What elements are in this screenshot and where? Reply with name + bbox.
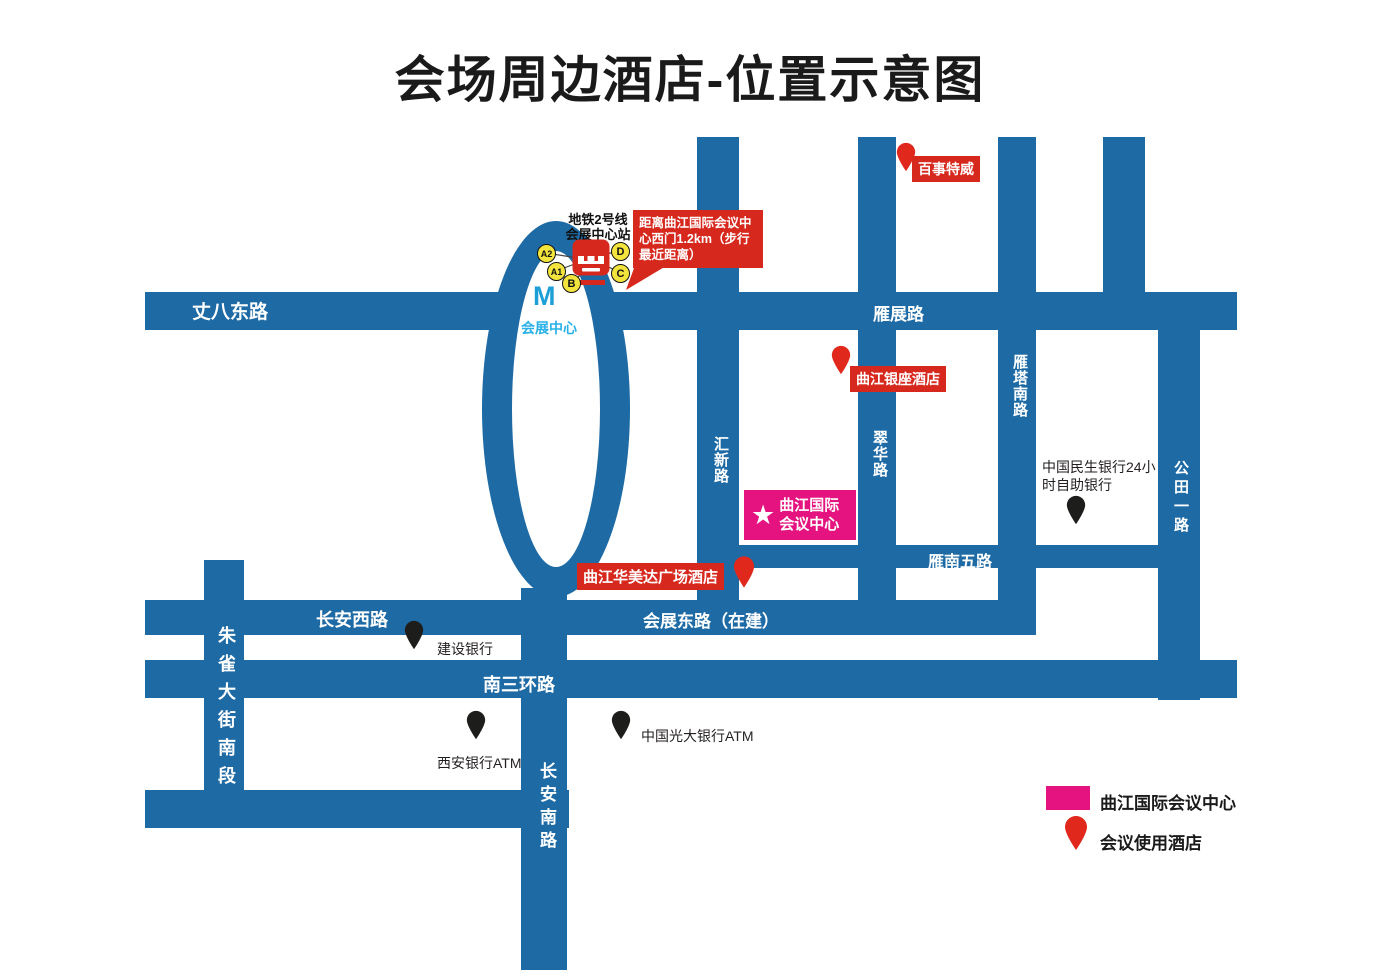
- exit-b-label: B: [568, 278, 576, 290]
- bank-label-xian-atm: 西安银行ATM: [437, 753, 522, 773]
- road-label-yanta-south: 雁塔南路: [1009, 354, 1030, 418]
- distance-callout: 距离曲江国际会议中心西门1.2km（步行最近距离）: [633, 210, 763, 268]
- hotel-location-map: 会场周边酒店-位置示意图 丈八东路 雁展路 长安西路 会展东路（在建） 南三环路…: [0, 0, 1380, 976]
- road-label-south-3rd-ring: 南三环路: [483, 671, 555, 697]
- bank-pin-minsheng: [1066, 495, 1086, 525]
- metro-exit-a2: A2: [537, 244, 556, 263]
- expo-center-label: 会展中心: [521, 318, 577, 338]
- legend-venue-swatch: [1046, 786, 1090, 810]
- hotel-label-best-west: 百事特威: [912, 156, 980, 182]
- page-title: 会场周边酒店-位置示意图: [0, 40, 1380, 112]
- hotel-pin-ramada: [733, 556, 755, 588]
- venue-name-line1: 曲江国际: [779, 496, 839, 515]
- metro-station-name: 地铁2号线 会展中心站: [550, 212, 646, 242]
- venue-box: ★ 曲江国际 会议中心: [744, 490, 856, 540]
- road-south-3rd-ring: [145, 660, 1237, 698]
- legend-hotel-label: 会议使用酒店: [1100, 829, 1202, 854]
- metro-exit-c: C: [611, 264, 630, 283]
- road-label-cuihua: 翠华路: [869, 430, 890, 478]
- road-changanxi-huizhandong: [145, 600, 1033, 635]
- metro-line-label: 地铁2号线: [550, 212, 646, 227]
- star-icon: ★: [751, 502, 775, 529]
- road-label-changan-south: 长安南路: [534, 762, 559, 854]
- hotel-label-ramada: 曲江华美达广场酒店: [577, 563, 724, 590]
- exit-c-label: C: [617, 268, 625, 280]
- hotel-pin-yinzuo: [831, 345, 851, 375]
- exit-a2-label: A2: [541, 249, 553, 259]
- road-label-changan-west: 长安西路: [316, 606, 388, 632]
- legend-hotel-pin: [1064, 816, 1088, 850]
- road-label-gongtian-1st: 公田一路: [1170, 460, 1191, 536]
- metro-m-icon: M: [533, 281, 556, 312]
- legend-venue-label: 曲江国际会议中心: [1100, 789, 1236, 814]
- bank-pin-ceb-atm: [611, 710, 631, 740]
- bank-pin-xian-atm: [466, 710, 486, 740]
- exit-a1-label: A1: [551, 267, 563, 277]
- metro-exit-b: B: [562, 274, 581, 293]
- road-north-stub: [1103, 137, 1145, 292]
- bank-label-ceb-atm: 中国光大银行ATM: [641, 726, 754, 746]
- road-label-zhuque-street: 朱雀大街南段: [213, 626, 239, 794]
- road-zhangba-yanzhan: [145, 292, 1237, 330]
- road-label-huizhan-east: 会展东路（在建）: [643, 607, 779, 632]
- venue-name-line2: 会议中心: [779, 515, 839, 534]
- bank-label-ccb: 建设银行: [437, 639, 493, 659]
- road-label-huixin: 汇新路: [710, 436, 731, 484]
- hotel-label-yinzuo: 曲江银座酒店: [850, 366, 946, 392]
- road-label-zhangba-east: 丈八东路: [192, 297, 268, 324]
- exit-d-label: D: [617, 246, 625, 258]
- road-huixin: [697, 137, 739, 600]
- metro-exit-d: D: [611, 242, 630, 261]
- road-label-yanzhan: 雁展路: [873, 300, 924, 325]
- bank-pin-ccb: [404, 620, 424, 650]
- bank-label-minsheng: 中国民生银行24小时自助银行: [1042, 458, 1158, 494]
- road-label-yannan-5th: 雁南五路: [928, 548, 992, 572]
